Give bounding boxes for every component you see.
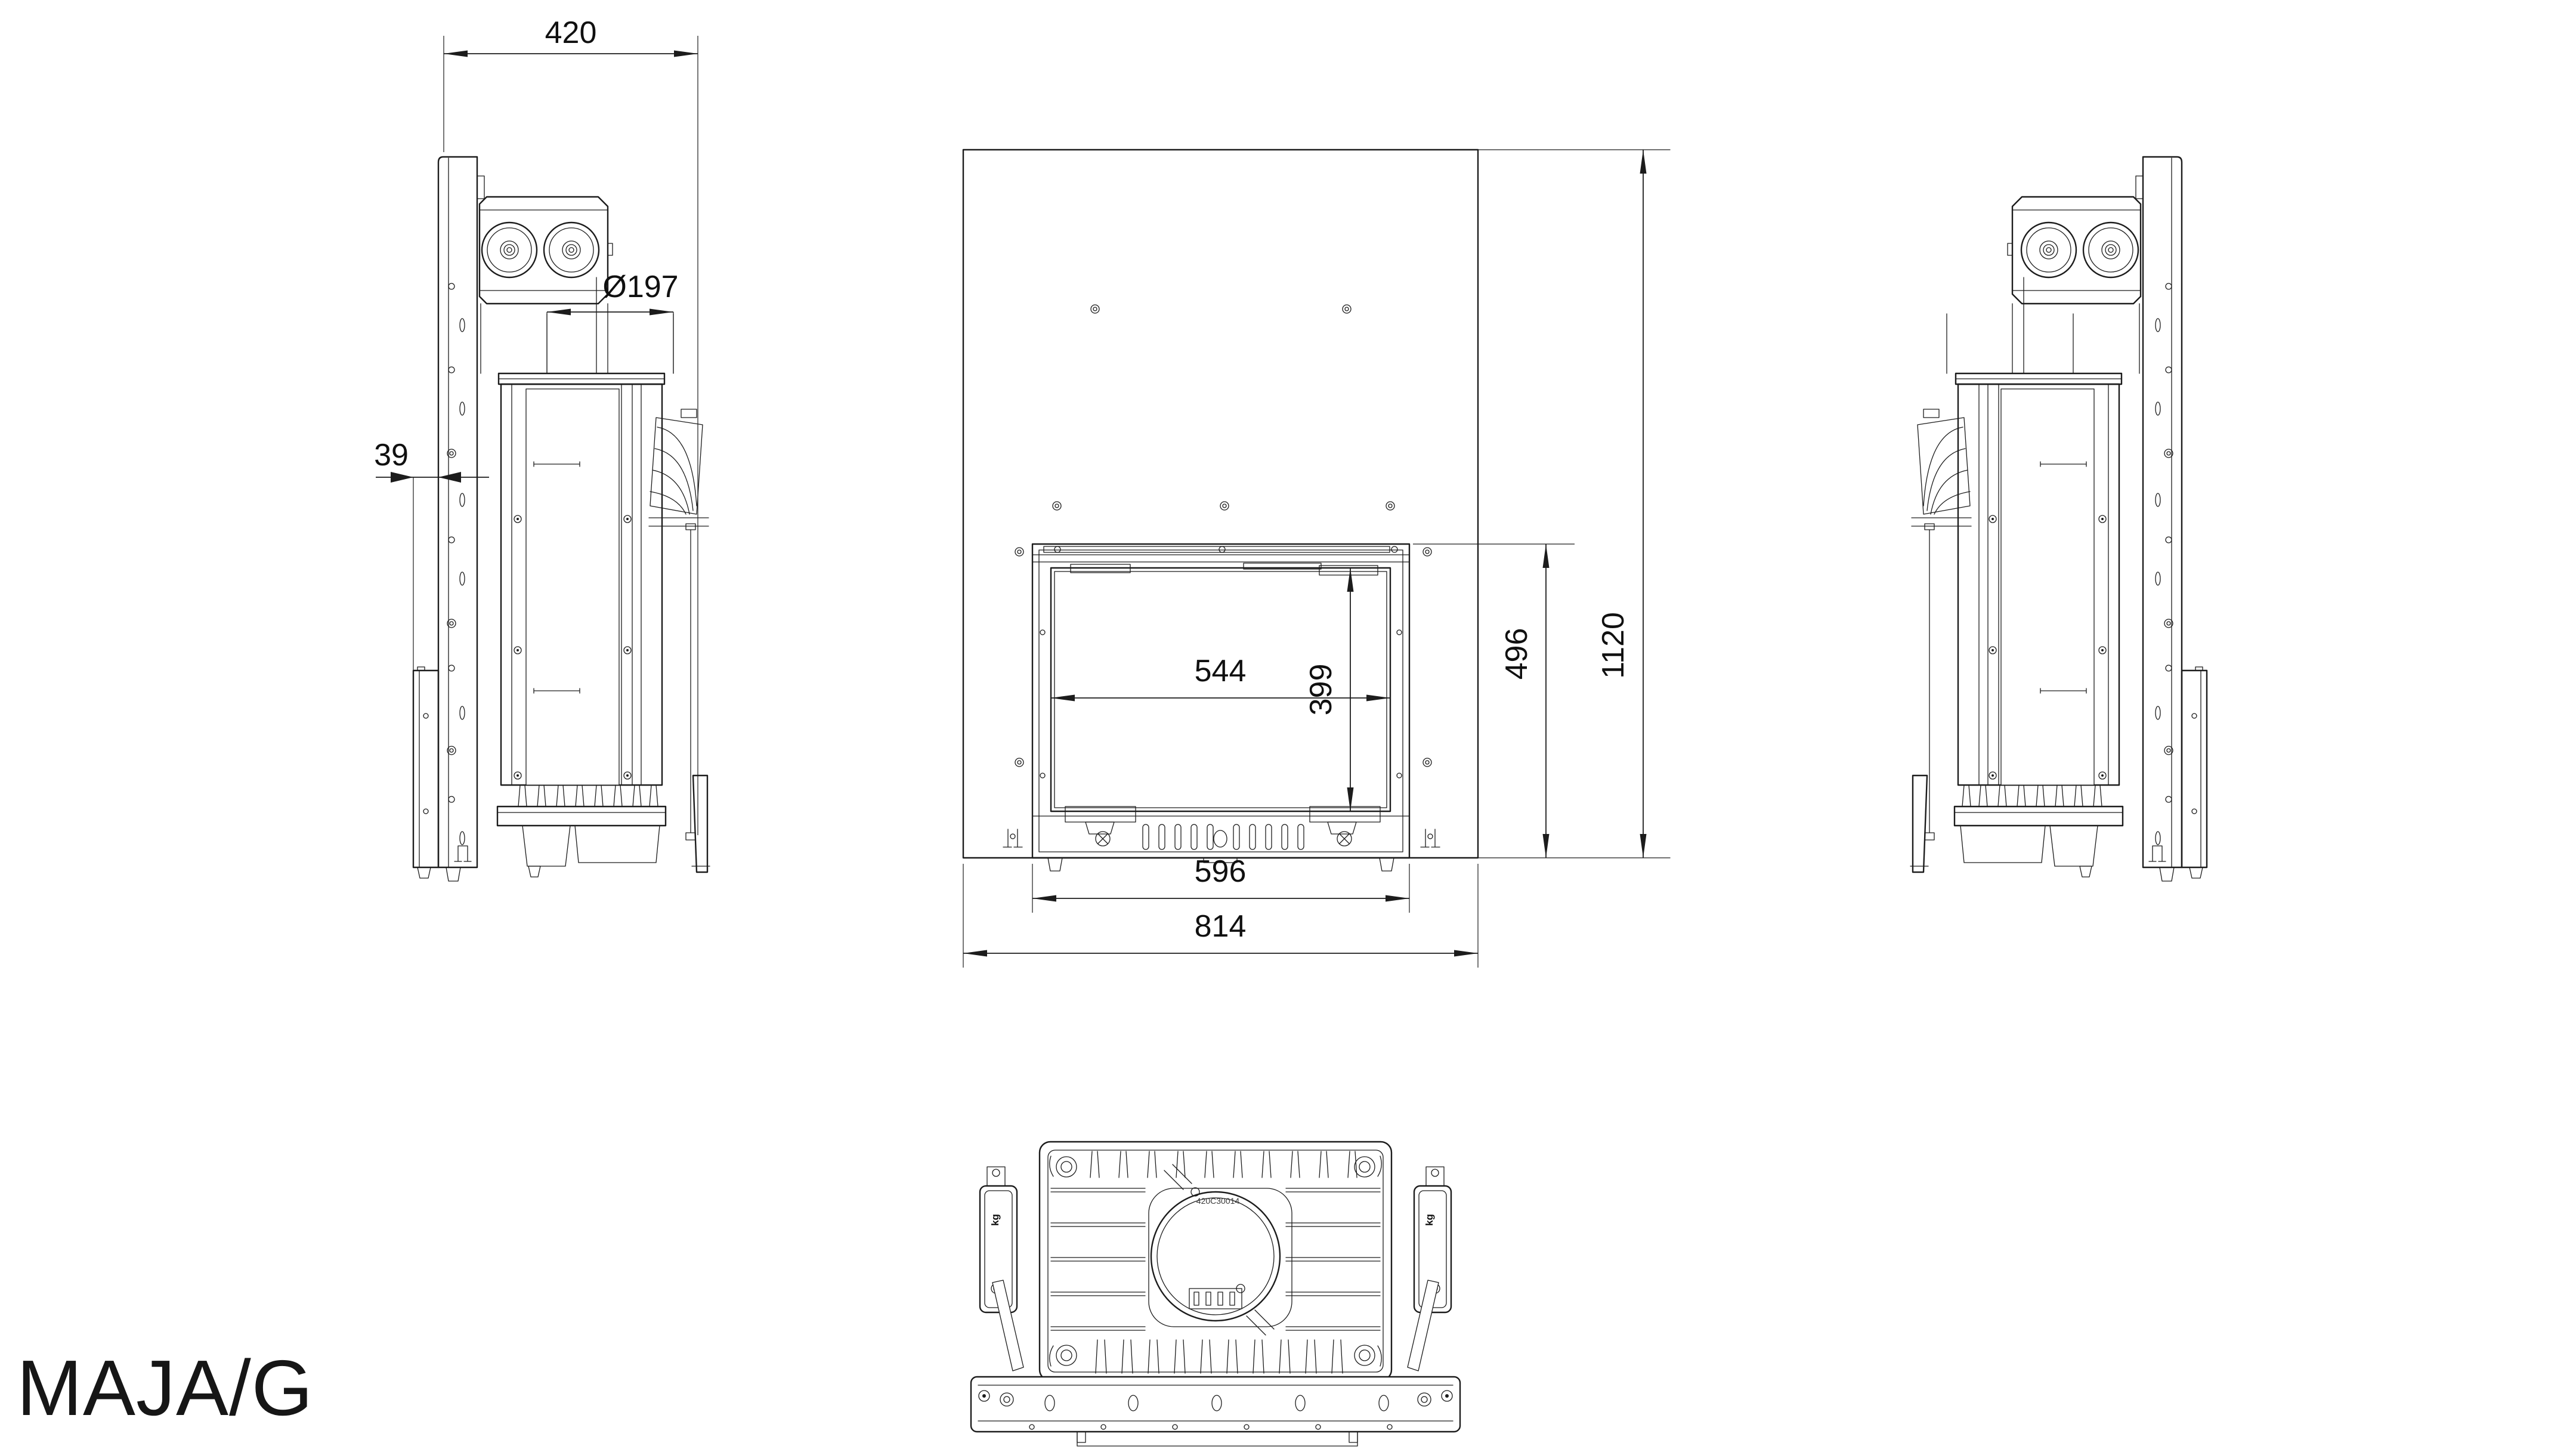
bar-lower-plate: [1077, 1432, 1357, 1446]
dim-label-1120: 1120: [1596, 612, 1631, 679]
kg-label: kg: [989, 1214, 1001, 1226]
air-louvers: [1143, 824, 1304, 849]
door-front-parts: [649, 409, 710, 872]
counterweight-rail-right: kg: [1408, 1167, 1451, 1371]
louver-fins: [518, 785, 658, 807]
side-view-right: [1910, 157, 2207, 881]
pulley-assembly: [480, 197, 613, 304]
dim-label-39: 39: [374, 438, 409, 472]
side-view-geometry: [413, 157, 710, 881]
base-assembly: [497, 807, 666, 877]
dim-glass-height: 399: [1304, 568, 1350, 811]
plate-holes: [447, 283, 471, 861]
dim-insert-width: 596: [1032, 854, 1409, 913]
dim-wall-offset: 39: [374, 438, 489, 671]
top-view: 420C30014 kg kg: [971, 1142, 1460, 1446]
firebox-body: [497, 373, 666, 877]
dim-frame-height: 1120: [1596, 150, 1643, 858]
dim-glass-width: 544: [1051, 654, 1390, 698]
dim-insert-height: 496: [1413, 544, 1575, 858]
frame-screw-holes: [1015, 305, 1431, 767]
wall-plate: [438, 157, 484, 881]
drawing-sheet: 420 Ø197 39: [0, 0, 2576, 1449]
dim-label-544: 544: [1195, 654, 1247, 688]
dim-label-814: 814: [1195, 909, 1247, 944]
technical-drawing: 420 Ø197 39: [0, 0, 2576, 1449]
dim-label-496: 496: [1499, 628, 1534, 680]
casting-stamp: 420C30014: [1196, 1196, 1240, 1206]
bottom-fins: [1096, 1340, 1343, 1373]
dim-flue-diameter: Ø197: [547, 270, 679, 373]
counterweight-rail-left: kg: [980, 1167, 1023, 1371]
heat-shield-panel: [526, 389, 619, 785]
dim-label-420: 420: [545, 16, 597, 50]
pulley-wheel: [482, 223, 537, 277]
glass-opening: [1040, 568, 1402, 811]
floor-anchors: [1003, 829, 1440, 847]
top-fins: [1090, 1151, 1357, 1178]
dim-label-399: 399: [1304, 664, 1338, 716]
insert-front: [1003, 544, 1440, 871]
insert-bottom-band: [1032, 807, 1409, 849]
insert-top-band: [1032, 546, 1409, 575]
flue-opening: 420C30014: [1149, 1164, 1292, 1335]
front-panel-strip: [413, 667, 438, 878]
mounting-bar: [971, 1377, 1460, 1432]
pulley-wheel: [544, 223, 599, 277]
front-view: 544 399 496 1120 596 814: [963, 150, 1670, 968]
product-label: MAJA/G: [17, 1344, 313, 1432]
dim-label-flue: Ø197: [602, 270, 678, 304]
dim-label-596: 596: [1195, 854, 1247, 889]
kg-label: kg: [1424, 1214, 1435, 1226]
